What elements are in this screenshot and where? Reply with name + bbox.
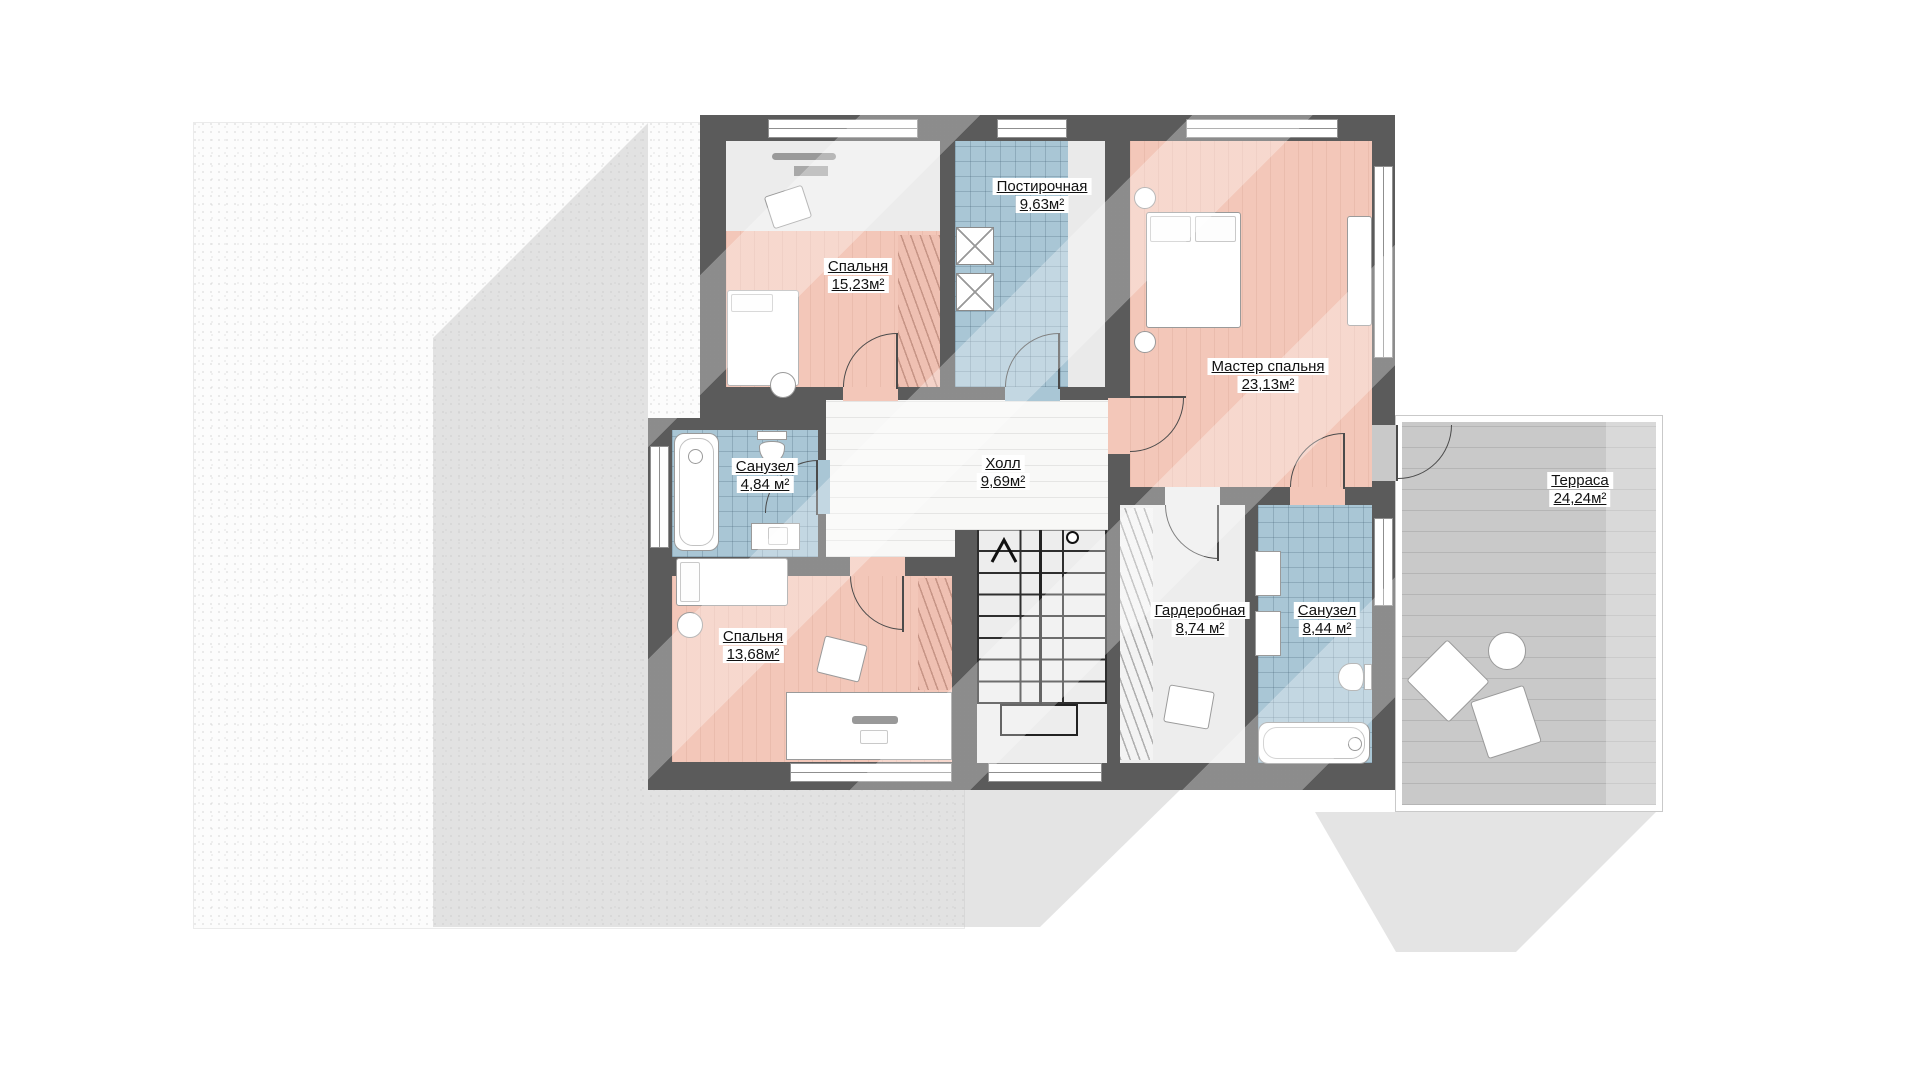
bedroom-2-wardrobe-strip — [918, 578, 952, 690]
window — [1186, 119, 1338, 138]
door-leaf — [1130, 396, 1186, 398]
nightstand-icon — [1134, 187, 1156, 209]
washing-machine-icon — [956, 273, 994, 311]
room-label-wardrobe: Гардеробная 8,74 м² — [1151, 602, 1250, 637]
door-opening — [1005, 387, 1060, 401]
stairs-up-arrow-icon — [988, 534, 1020, 566]
room-name: Спальня — [824, 258, 892, 275]
room-area: 9,69м² — [977, 473, 1030, 490]
window — [768, 119, 918, 138]
door-leaf — [816, 460, 818, 515]
room-label-bathroom-1: Санузел 4,84 м² — [732, 458, 798, 493]
room-name: Мастер спальня — [1208, 358, 1329, 375]
room-area: 4,84 м² — [737, 476, 794, 493]
stair-center-rail — [1039, 530, 1042, 704]
floor-plan: Постирочная 9,63м² Спальня 15,23м² Масте… — [0, 0, 1920, 1080]
armchair-icon — [1163, 684, 1215, 729]
washing-machine-icon — [956, 227, 994, 265]
window — [650, 446, 669, 548]
toilet-icon — [757, 431, 787, 440]
window — [988, 763, 1102, 782]
door-leaf — [896, 333, 898, 389]
door-opening — [843, 387, 898, 401]
sink-icon — [1255, 551, 1281, 596]
tv-icon — [772, 153, 836, 160]
room-label-terrace: Терраса 24,24м² — [1547, 472, 1613, 507]
room-area: 23,13м² — [1238, 376, 1299, 393]
room-name: Терраса — [1547, 472, 1613, 489]
room-area: 8,74 м² — [1172, 620, 1229, 637]
room-label-bedroom-1: Спальня 15,23м² — [824, 258, 892, 293]
stair-post-marker — [1066, 531, 1079, 544]
faucet-icon — [688, 449, 703, 464]
hall-corridor — [826, 530, 955, 557]
pillow-icon — [731, 294, 773, 312]
sink-icon — [768, 527, 788, 545]
room-area: 15,23м² — [828, 276, 889, 293]
window — [997, 119, 1067, 138]
monitor-icon — [852, 716, 898, 724]
nightstand-icon — [1134, 331, 1156, 353]
door-opening — [1165, 487, 1220, 505]
room-hall — [826, 400, 1108, 530]
door-opening — [850, 557, 905, 576]
room-label-laundry: Постирочная 9,63м² — [993, 178, 1092, 213]
wardrobe-shelf-strip — [1120, 508, 1153, 760]
terrace-table-icon — [1488, 632, 1526, 670]
door-opening — [1372, 425, 1398, 481]
keyboard-icon — [860, 730, 888, 744]
room-area: 9,63м² — [1016, 196, 1069, 213]
room-label-master-bedroom: Мастер спальня 23,13м² — [1208, 358, 1329, 393]
bedroom-1-wardrobe-strip — [898, 235, 940, 387]
toilet-bowl-icon — [1338, 663, 1364, 691]
room-name: Санузел — [732, 458, 798, 475]
terrace-light-strip — [1606, 422, 1656, 805]
door-opening — [1290, 487, 1345, 505]
door-opening — [1108, 398, 1130, 454]
room-name: Постирочная — [993, 178, 1092, 195]
stair-landing-rail — [1000, 704, 1078, 736]
room-label-bedroom-2: Спальня 13,68м² — [719, 628, 787, 663]
tv-stand-icon — [794, 166, 828, 176]
dresser-icon — [1347, 216, 1372, 326]
room-name: Гардеробная — [1151, 602, 1250, 619]
door-leaf — [902, 576, 904, 632]
desk-icon — [786, 692, 952, 760]
room-area: 13,68м² — [723, 646, 784, 663]
faucet-icon — [1348, 737, 1362, 751]
room-area: 8,44 м² — [1299, 620, 1356, 637]
door-leaf — [1396, 425, 1398, 481]
room-label-bathroom-2: Санузел 8,44 м² — [1294, 602, 1360, 637]
room-name: Санузел — [1294, 602, 1360, 619]
door-leaf — [1058, 333, 1060, 389]
door-opening — [818, 460, 830, 514]
pillow-icon — [1150, 216, 1191, 242]
room-label-hall: Холл 9,69м² — [977, 455, 1030, 490]
pillow-icon — [680, 562, 700, 602]
door-leaf — [1217, 505, 1219, 561]
pillow-icon — [1195, 216, 1236, 242]
window — [1374, 518, 1393, 606]
window — [790, 763, 952, 782]
door-leaf — [1343, 433, 1345, 489]
sink-icon — [1255, 611, 1281, 656]
window — [1374, 166, 1393, 358]
pouf-icon — [677, 612, 703, 638]
room-area: 24,24м² — [1550, 490, 1611, 507]
pouf-icon — [770, 372, 796, 398]
room-name: Спальня — [719, 628, 787, 645]
toilet-tank-icon — [1364, 664, 1372, 690]
room-name: Холл — [981, 455, 1024, 472]
